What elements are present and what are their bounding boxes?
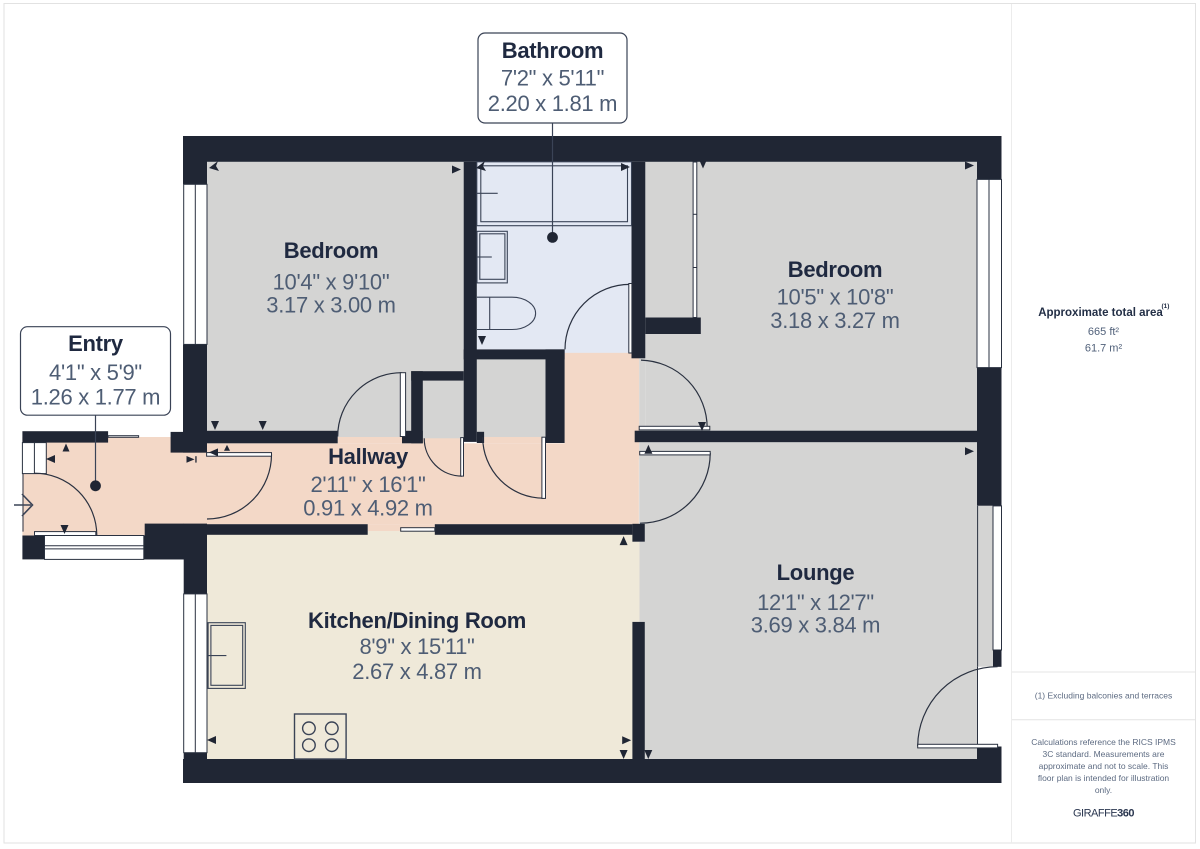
svg-text:3C standard. Measurements are: 3C standard. Measurements are xyxy=(1043,749,1165,759)
svg-text:Bedroom: Bedroom xyxy=(284,238,378,263)
svg-text:floor plan is intended for ill: floor plan is intended for illustration xyxy=(1038,773,1170,783)
svg-text:Bedroom: Bedroom xyxy=(788,257,882,282)
svg-text:Calculations reference the RIC: Calculations reference the RICS IPMS xyxy=(1031,737,1176,747)
svg-text:8'9" x 15'11": 8'9" x 15'11" xyxy=(359,634,474,659)
svg-text:GIRAFFE360: GIRAFFE360 xyxy=(1073,808,1134,820)
svg-text:3.69 x 3.84 m: 3.69 x 3.84 m xyxy=(751,613,880,638)
svg-text:10'5" x 10'8": 10'5" x 10'8" xyxy=(777,285,894,310)
svg-text:approximate and not to scale.: approximate and not to scale. This xyxy=(1039,761,1169,771)
svg-text:(1): (1) xyxy=(1162,303,1170,310)
svg-text:Entry: Entry xyxy=(68,331,124,356)
svg-text:2.20 x 1.81 m: 2.20 x 1.81 m xyxy=(488,91,617,116)
svg-text:Lounge: Lounge xyxy=(777,560,855,585)
svg-text:61.7 m²: 61.7 m² xyxy=(1085,343,1123,355)
svg-text:10'4" x 9'10": 10'4" x 9'10" xyxy=(273,270,390,295)
svg-text:12'1" x 12'7": 12'1" x 12'7" xyxy=(757,590,874,615)
svg-text:Bathroom: Bathroom xyxy=(502,38,604,63)
svg-text:3.18 x 3.27 m: 3.18 x 3.27 m xyxy=(770,308,899,333)
svg-text:4'1" x 5'9": 4'1" x 5'9" xyxy=(49,360,142,385)
svg-text:Kitchen/Dining Room: Kitchen/Dining Room xyxy=(308,608,526,633)
svg-text:only.: only. xyxy=(1095,785,1112,795)
svg-text:1.26 x 1.77 m: 1.26 x 1.77 m xyxy=(31,385,160,410)
svg-text:3.17 x 3.00 m: 3.17 x 3.00 m xyxy=(266,293,395,318)
svg-text:Approximate total area: Approximate total area xyxy=(1038,307,1163,319)
svg-text:Hallway: Hallway xyxy=(328,444,409,469)
svg-text:2'11" x 16'1": 2'11" x 16'1" xyxy=(310,472,425,497)
svg-text:2.67 x 4.87 m: 2.67 x 4.87 m xyxy=(352,659,481,684)
svg-text:665 ft²: 665 ft² xyxy=(1088,326,1120,338)
svg-text:(1) Excluding balconies and te: (1) Excluding balconies and terraces xyxy=(1035,691,1173,701)
svg-text:0.91 x 4.92 m: 0.91 x 4.92 m xyxy=(303,495,432,520)
svg-text:7'2" x 5'11": 7'2" x 5'11" xyxy=(501,66,604,91)
